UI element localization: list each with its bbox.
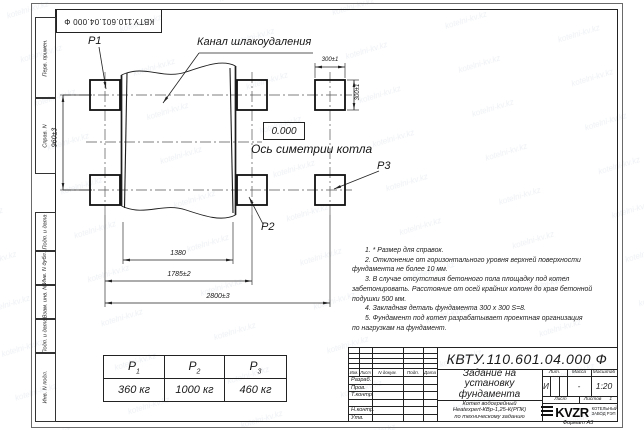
load-table: Р1 Р2 Р3 360 кг 1000 кг 460 кг	[103, 355, 287, 402]
sheets-cell: Листов 1	[579, 396, 617, 403]
sidebar-box-perv-primen: Перв. примен.	[35, 17, 56, 99]
drawing-sheet: kotelni-kv.kz КВТУ.110.601.04.000 Ф Перв…	[0, 0, 644, 430]
load-value-p2: 1000 кг	[165, 379, 225, 401]
sidebar-label: Инв. N подл.	[43, 371, 49, 404]
note-line: по нагрузкам на фундамент.	[352, 324, 614, 334]
dim-1785: 1785±2	[157, 271, 201, 278]
mass-label: Масса	[567, 369, 591, 376]
load-value-p3: 460 кг	[225, 379, 286, 401]
elevation-mark: 0.000	[263, 122, 305, 140]
row-nkontr: Н.контр.	[351, 407, 375, 413]
lit-label: Лит.	[542, 369, 567, 376]
sheets-label: Листов	[584, 397, 601, 402]
dim-1380: 1380	[158, 250, 198, 257]
sidebar-box-podp-data-2: Подп. и дата	[35, 318, 56, 354]
note-line: забетонировать. Расстояние от осей крайн…	[352, 285, 614, 295]
scale-value: 1:20	[591, 376, 617, 396]
col-list: Лист	[359, 368, 372, 376]
col-izm: Изм.	[349, 368, 359, 376]
dim-960: 960±3	[52, 120, 59, 156]
note-line: фундамента не более 10 мм.	[352, 265, 614, 275]
dim-300-height: 300±1	[355, 79, 361, 105]
note-line: 5. Фундамент под котел разрабатывает про…	[352, 314, 614, 324]
symmetry-axis-label: Ось симетрии котла	[251, 142, 372, 156]
col-doc: N докум.	[372, 368, 403, 376]
sidebar-label: Перв. примен.	[43, 39, 49, 76]
corner-doc-number: КВТУ.110.601.04.000 Ф	[64, 17, 154, 26]
load-table-header-p1: Р1	[104, 356, 165, 379]
p3-label: P3	[377, 160, 390, 172]
sidebar-label: Инв. N дубл.	[43, 252, 49, 284]
title-line: фундамента	[459, 390, 520, 400]
load-table-header-p3: Р3	[225, 356, 286, 379]
row-tkontr: Т.контр.	[351, 392, 374, 398]
row-razrab: Разраб.	[351, 377, 371, 383]
product-line: по техническому заданию	[454, 414, 524, 420]
drawing-title: Задание на установку фундамента	[437, 369, 542, 400]
note-line: подушки 500 мм.	[352, 295, 614, 305]
kvzr-logo-icon	[541, 406, 553, 418]
lit-value: И	[542, 376, 550, 396]
format-label: Формат А3	[540, 420, 616, 426]
col-data: Дата	[423, 368, 437, 376]
sidebar-label: Подп. и дата	[43, 318, 49, 353]
load-value-p1: 360 кг	[104, 379, 165, 401]
mass-value: -	[567, 376, 591, 396]
kvzr-logo-caption: КОТЕЛЬНЫЙ ЗАВОД РЭП	[592, 407, 618, 417]
kvzr-logo-text: KVZR	[555, 405, 588, 420]
sidebar-label: Справ. N	[43, 124, 49, 147]
dim-2800: 2800±3	[196, 293, 240, 300]
note-line: 3. В случае отсутствия бетонного пола пл…	[352, 275, 614, 285]
sheets-count: 1	[609, 397, 612, 402]
titleblock-doc-number: КВТУ.110.601.04.000 Ф	[437, 348, 617, 369]
load-table-header-p2: Р2	[165, 356, 225, 379]
elevation-value: 0.000	[271, 126, 296, 137]
sidebar-box-vzam-inv: Взам. инв. N	[35, 284, 56, 320]
channel-label: Канал шлакоудаления	[197, 36, 311, 48]
note-line: 1. * Размер для справок.	[352, 246, 614, 256]
scale-label: Масштаб	[591, 369, 617, 376]
row-prov: Пров.	[351, 385, 366, 391]
sidebar-label: Взам. инв. N	[43, 286, 49, 319]
sheet-label: Лист	[542, 396, 579, 403]
product-name: Котел водогрейный Heatexpert-КВр-1,25-К(…	[437, 400, 542, 421]
sidebar-box-podp-data-1: Подп. и дата	[35, 212, 56, 252]
col-podp: Подп.	[403, 368, 423, 376]
note-line: 2. Отклонение от горизонтального уровня …	[352, 256, 614, 266]
logo-caption-line: ЗАВОД РЭП	[592, 412, 616, 417]
sidebar-box-inv-dubl: Инв. N дубл.	[35, 250, 56, 286]
p2-label: P2	[261, 221, 274, 233]
logo-cell: KVZR КОТЕЛЬНЫЙ ЗАВОД РЭП	[542, 403, 617, 421]
dim-300-width: 300±1	[313, 57, 347, 63]
corner-doc-number-stamp: КВТУ.110.601.04.000 Ф	[56, 9, 162, 33]
sidebar-label: Подп. и дата	[43, 214, 49, 249]
note-line: 4. Закладная деталь фундамента 300 x 300…	[352, 304, 614, 314]
sidebar-box-inv-podl: Инв. N подл.	[35, 352, 56, 422]
row-utv: Утв.	[351, 415, 364, 421]
p1-label: P1	[88, 35, 101, 47]
notes-block: 1. * Размер для справок. 2. Отклонение о…	[352, 246, 614, 333]
title-block: Изм. Лист N докум. Подп. Дата Разраб. Пр…	[348, 347, 618, 422]
